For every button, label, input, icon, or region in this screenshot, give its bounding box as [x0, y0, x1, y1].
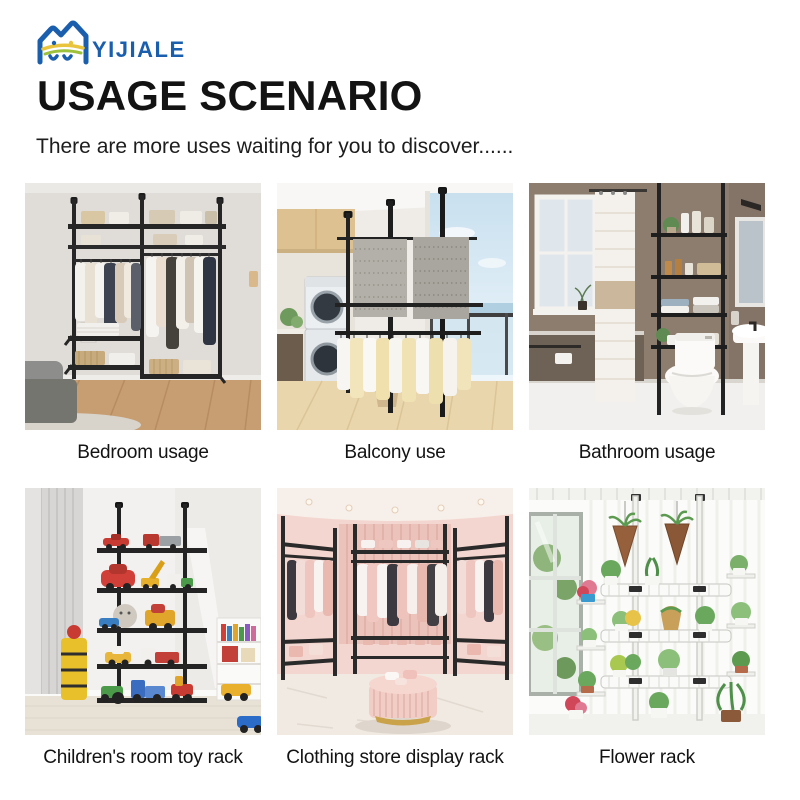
house-logo-icon — [33, 16, 91, 70]
scenario-card-bathroom: Bathroom usage — [529, 183, 765, 488]
scenario-caption: Bedroom usage — [25, 430, 261, 488]
flower-rack-photo — [529, 488, 765, 735]
page-subtitle: There are more uses waiting for you to d… — [36, 135, 513, 159]
scenario-caption: Flower rack — [529, 735, 765, 793]
scenario-caption: Bathroom usage — [529, 430, 765, 488]
brand-name: YIJIALE — [91, 37, 186, 70]
scenario-card-bedroom: Bedroom usage — [25, 183, 261, 488]
scenario-caption: Children's room toy rack — [25, 735, 261, 793]
clothing-store-card: Clothing store display rack — [277, 488, 513, 793]
page-title: USAGE SCENARIO — [37, 72, 423, 120]
clothing-store-illustration — [277, 488, 513, 735]
brand-logo: YIJIALE — [33, 16, 186, 70]
bathroom-illustration — [529, 183, 765, 430]
bedroom-illustration — [25, 183, 261, 430]
scenario-caption: Clothing store display rack — [277, 735, 513, 793]
children-room-photo — [25, 488, 261, 735]
children-room-illustration — [25, 488, 261, 735]
flower-rack-card: Flower rack — [529, 488, 765, 793]
flower-rack-illustration — [529, 488, 765, 735]
clothing-store-photo — [277, 488, 513, 735]
bedroom-photo — [25, 183, 261, 430]
scenario-grid: Bedroom usage — [25, 183, 765, 793]
scenario-caption: Balcony use — [277, 430, 513, 488]
scenario-card-balcony: Balcony use — [277, 183, 513, 488]
balcony-illustration — [277, 183, 513, 430]
balcony-photo — [277, 183, 513, 430]
bathroom-photo — [529, 183, 765, 430]
children-room-card: Children's room toy rack — [25, 488, 261, 793]
